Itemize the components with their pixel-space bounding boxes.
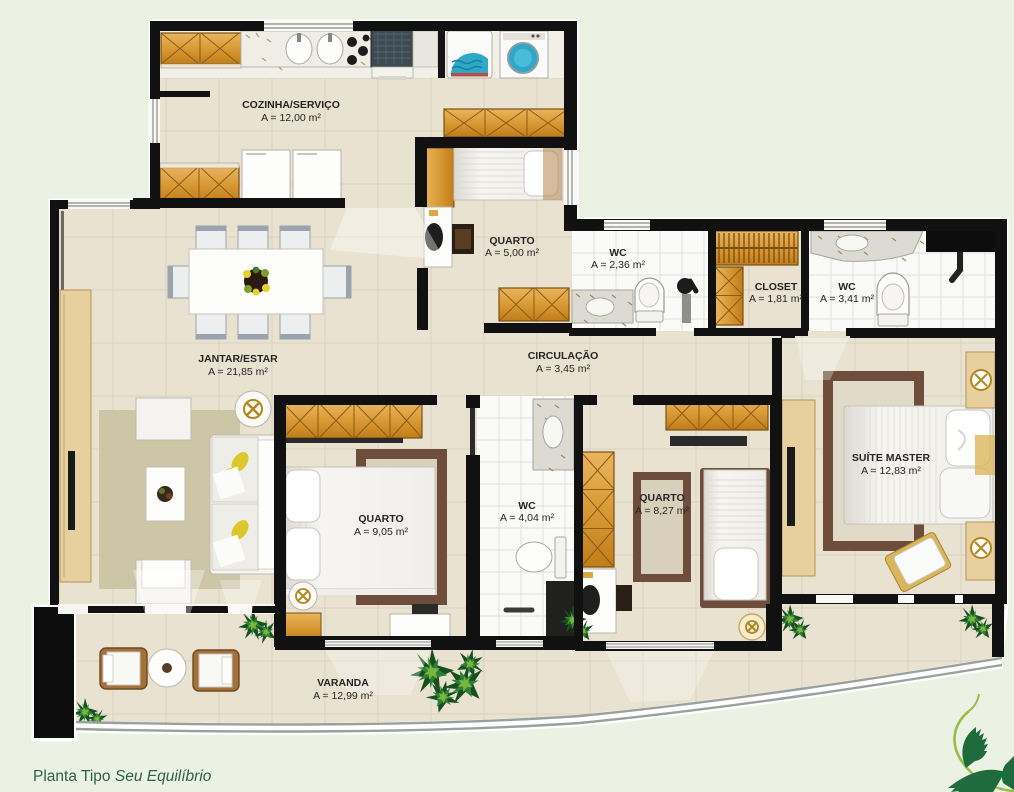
svg-text:A = 8,27 m²: A = 8,27 m²	[635, 505, 689, 517]
svg-text:WC: WC	[518, 500, 536, 512]
svg-text:A = 1,81 m²: A = 1,81 m²	[749, 293, 803, 305]
svg-text:A = 2,36 m²: A = 2,36 m²	[591, 259, 645, 271]
svg-text:A = 12,99 m²: A = 12,99 m²	[313, 690, 373, 702]
svg-text:SUÍTE MASTER: SUÍTE MASTER	[852, 451, 931, 464]
svg-text:A = 3,45 m²: A = 3,45 m²	[536, 363, 590, 375]
svg-text:A = 9,05 m²: A = 9,05 m²	[354, 526, 408, 538]
svg-text:A = 12,00 m²: A = 12,00 m²	[261, 112, 321, 124]
svg-text:A = 5,00 m²: A = 5,00 m²	[485, 247, 539, 259]
svg-text:Planta Tipo Seu Equilíbrio: Planta Tipo Seu Equilíbrio	[33, 768, 212, 785]
svg-text:CIRCULAÇÃO: CIRCULAÇÃO	[528, 349, 599, 362]
svg-text:COZINHA/SERVIÇO: COZINHA/SERVIÇO	[242, 99, 340, 111]
svg-text:CLOSET: CLOSET	[755, 281, 798, 293]
svg-text:A = 4,04 m²: A = 4,04 m²	[500, 512, 554, 524]
svg-text:WC: WC	[838, 281, 856, 293]
svg-text:A = 12,83 m²: A = 12,83 m²	[861, 465, 921, 477]
svg-text:A = 3,41 m²: A = 3,41 m²	[820, 293, 874, 305]
svg-text:VARANDA: VARANDA	[317, 677, 369, 689]
svg-text:QUARTO: QUARTO	[358, 513, 403, 525]
svg-text:QUARTO: QUARTO	[639, 492, 684, 504]
svg-text:A = 21,85 m²: A = 21,85 m²	[208, 366, 268, 378]
svg-text:JANTAR/ESTAR: JANTAR/ESTAR	[198, 353, 278, 365]
svg-text:WC: WC	[609, 247, 627, 259]
svg-text:QUARTO: QUARTO	[489, 235, 534, 247]
